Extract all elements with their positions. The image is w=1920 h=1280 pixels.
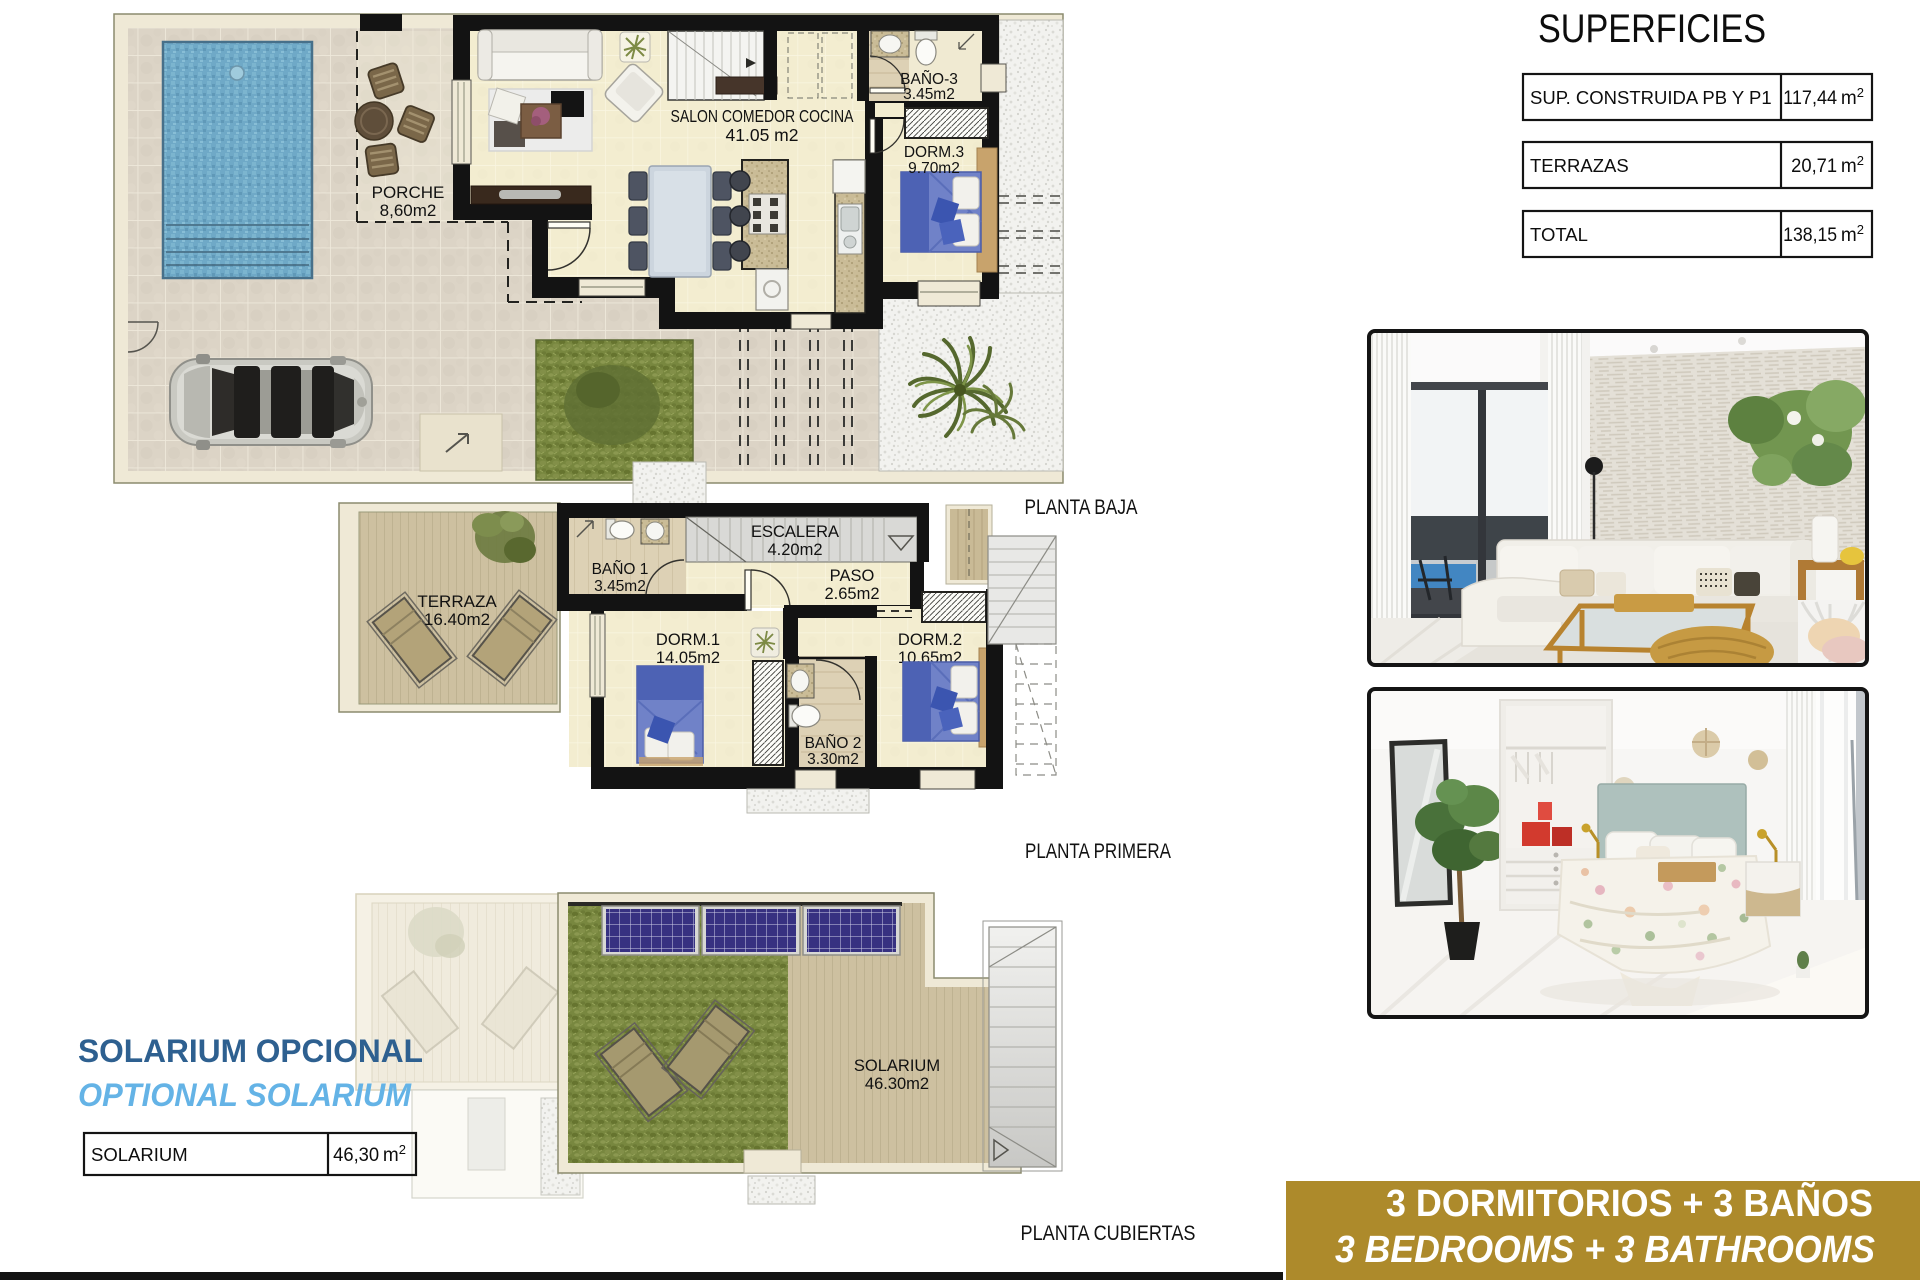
svg-text:20,71 m2: 20,71 m2 [1791, 153, 1864, 177]
svg-text:4.20m2: 4.20m2 [767, 541, 822, 559]
svg-text:SUP. CONSTRUIDA PB Y P1: SUP. CONSTRUIDA PB Y P1 [1530, 87, 1772, 108]
svg-text:TOTAL: TOTAL [1530, 224, 1588, 245]
svg-text:SUPERFICIES: SUPERFICIES [1538, 7, 1766, 51]
svg-text:138,15 m2: 138,15 m2 [1783, 222, 1864, 246]
svg-text:PLANTA BAJA: PLANTA BAJA [1025, 496, 1138, 519]
svg-text:46.30m2: 46.30m2 [865, 1075, 929, 1093]
svg-text:PLANTA PRIMERA: PLANTA PRIMERA [1025, 840, 1171, 863]
svg-text:DORM.2: DORM.2 [898, 631, 962, 649]
svg-text:OPTIONAL SOLARIUM: OPTIONAL SOLARIUM [78, 1077, 412, 1113]
svg-text:SOLARIUM: SOLARIUM [854, 1057, 940, 1075]
svg-text:SALON COMEDOR COCINA: SALON COMEDOR COCINA [671, 106, 854, 126]
svg-text:3.45m2: 3.45m2 [903, 86, 955, 103]
svg-text:3 BEDROOMS + 3 BATHROOMS: 3 BEDROOMS + 3 BATHROOMS [1335, 1229, 1875, 1271]
svg-text:TERRAZAS: TERRAZAS [1530, 155, 1629, 176]
svg-text:16.40m2: 16.40m2 [424, 610, 490, 629]
svg-text:ESCALERA: ESCALERA [751, 523, 839, 541]
svg-text:PASO: PASO [830, 567, 875, 585]
svg-text:3.30m2: 3.30m2 [807, 751, 859, 768]
svg-text:BAÑO 1: BAÑO 1 [592, 561, 649, 578]
svg-text:PORCHE: PORCHE [372, 183, 445, 202]
svg-text:3.45m2: 3.45m2 [594, 578, 646, 595]
svg-text:BAÑO 2: BAÑO 2 [805, 735, 862, 752]
svg-text:DORM.1: DORM.1 [656, 631, 720, 649]
svg-text:2.65m2: 2.65m2 [824, 585, 879, 603]
svg-text:SOLARIUM: SOLARIUM [91, 1144, 188, 1165]
svg-text:DORM.3: DORM.3 [904, 144, 964, 161]
svg-text:8,60m2: 8,60m2 [380, 201, 437, 220]
svg-text:46,30 m2: 46,30 m2 [333, 1142, 406, 1166]
svg-text:PLANTA CUBIERTAS: PLANTA CUBIERTAS [1021, 1222, 1196, 1245]
svg-text:SOLARIUM OPCIONAL: SOLARIUM OPCIONAL [78, 1033, 423, 1069]
svg-text:41.05 m2: 41.05 m2 [726, 125, 799, 145]
svg-text:117,44 m2: 117,44 m2 [1783, 85, 1864, 109]
svg-text:3 DORMITORIOS + 3 BAÑOS: 3 DORMITORIOS + 3 BAÑOS [1386, 1181, 1873, 1225]
svg-text:14.05m2: 14.05m2 [656, 649, 720, 667]
svg-text:TERRAZA: TERRAZA [417, 592, 497, 611]
svg-text:9.70m2: 9.70m2 [908, 160, 960, 177]
